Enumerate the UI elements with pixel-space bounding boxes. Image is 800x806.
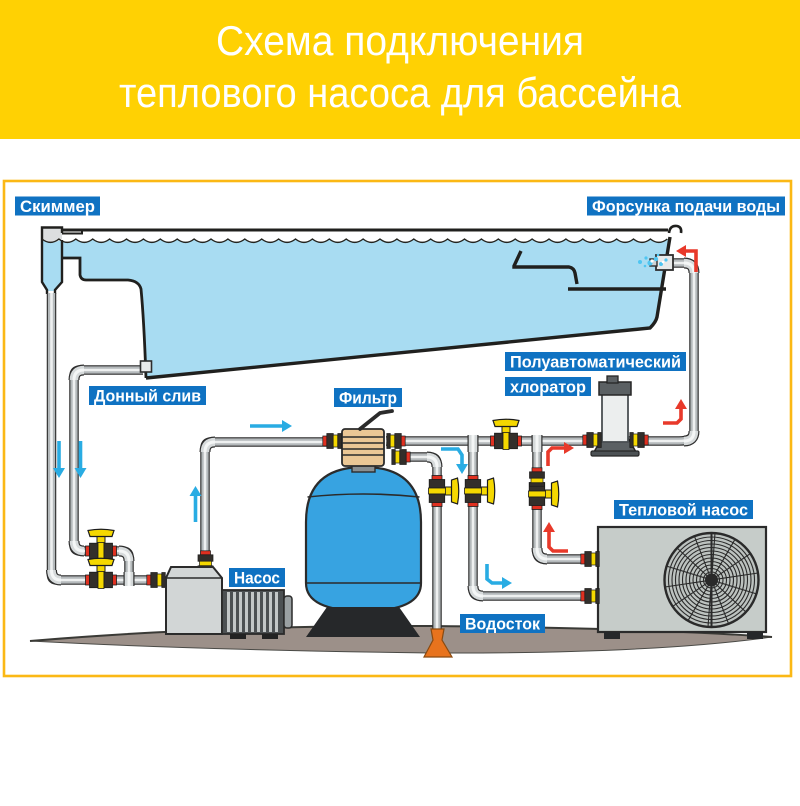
svg-text:Полуавтоматический: Полуавтоматический	[510, 353, 681, 371]
svg-text:Тепловой насос: Тепловой насос	[619, 501, 748, 519]
svg-text:Донный слив: Донный слив	[94, 387, 201, 405]
svg-text:хлоратор: хлоратор	[510, 378, 586, 396]
svg-text:Скиммер: Скиммер	[20, 198, 95, 216]
svg-text:Насос: Насос	[234, 569, 280, 587]
svg-text:Схема подключения: Схема подключения	[216, 17, 584, 64]
svg-text:Водосток: Водосток	[465, 615, 541, 633]
svg-text:Форсунка подачи воды: Форсунка подачи воды	[592, 198, 780, 216]
svg-text:теплового насоса для бассейна: теплового насоса для бассейна	[119, 69, 682, 116]
svg-text:Фильтр: Фильтр	[339, 389, 397, 407]
